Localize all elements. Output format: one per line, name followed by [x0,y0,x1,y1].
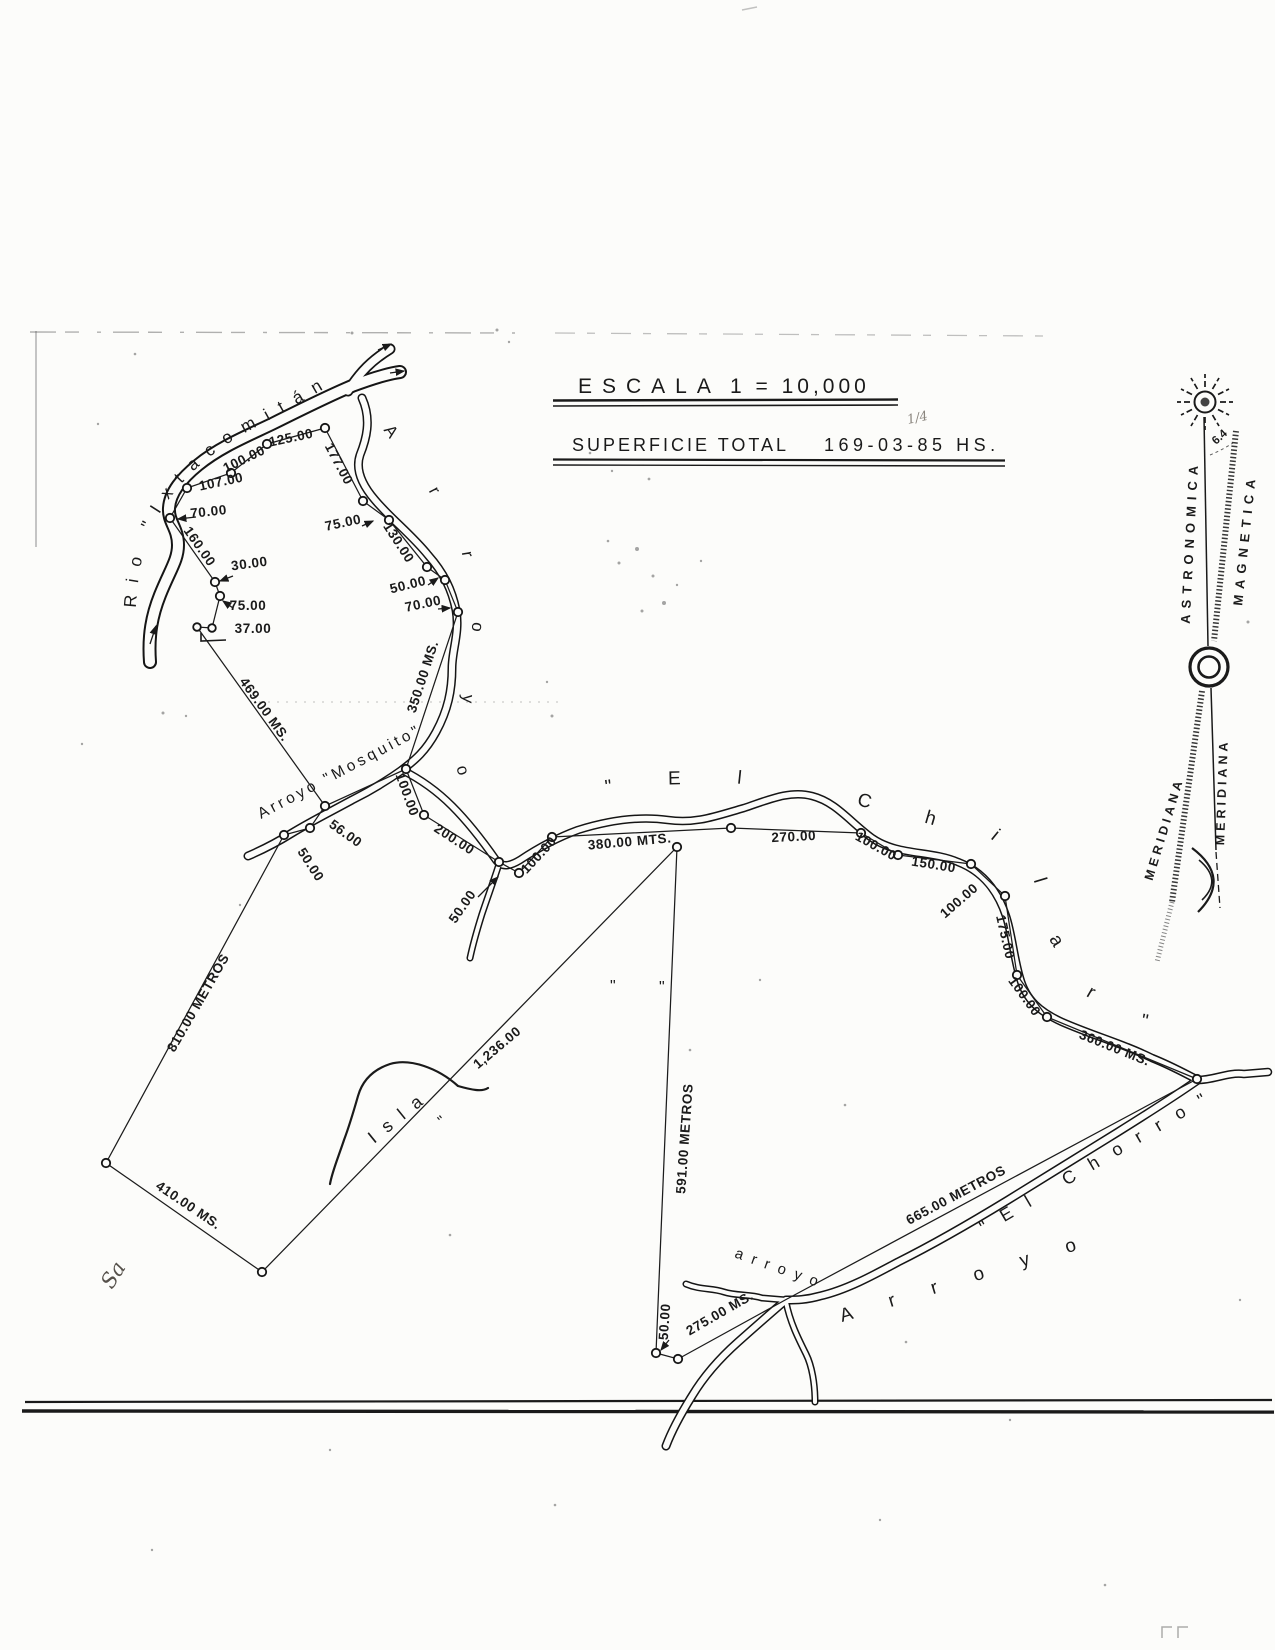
leader-arrow-75b [362,521,373,526]
dim-175: 175.00 [993,913,1018,960]
dim-50b: 50.00 [446,887,479,926]
escala-underline-1 [553,400,898,401]
ditto-mark-2: " [610,978,616,995]
dim-380: 380.00 MTS. [587,830,672,852]
sun-icon [1177,374,1233,430]
dim-270: 270.00 [771,828,817,845]
compass-ring-icon [1190,648,1228,686]
isla-label: Isla [364,1084,436,1147]
escala-underline-2 [553,405,898,406]
ditto-mark-3: " [659,979,665,996]
superficie-label: SUPERFICIE TOTAL [572,435,789,455]
leader-arrow-50a [428,578,438,585]
bottom-border-line-2 [22,1411,1274,1412]
small-arroyo-label: arroyo [732,1245,829,1294]
dim-50a: 50.00 [388,573,427,596]
survey-map-drawing: 107.00 100.00 125.00 177.00 70.00 160.00… [0,0,1275,1650]
superficie-value: 169-03-85 HS. [824,435,1000,455]
astronomic-meridian-line [1204,417,1208,646]
astronomica-label: ASTRONOMICA [1178,459,1202,624]
dim-469: 469.00 MS. [237,675,293,745]
compass-diagram: 6.4 ASTRONOMICA MAGNETICA MERIDIANA MERI… [1142,374,1259,962]
top-border-line [30,332,515,333]
magnetica-label: MAGNETICA [1230,473,1259,607]
dim-37: 37.00 [235,621,272,636]
dim-30: 30.00 [230,554,269,574]
dim-107: 107.00 [198,470,245,494]
dim-70b: 70.00 [404,592,443,614]
boundary-west [106,835,677,1353]
title-block: ESCALA 1 = 10,000 SUPERFICIE TOTAL 169-0… [553,375,1005,466]
dim-177: 177.00 [322,441,356,488]
declination-arc [1210,443,1233,455]
declination-value: 6.4 [1210,427,1230,447]
el-chorro-label: "El Chorro" [976,1081,1224,1237]
dim-75b: 75.00 [324,511,363,533]
dim-50d: 50.00 [656,1303,674,1341]
crescent-icon [1192,848,1214,912]
dim-360: 360.00 MS. [1077,1027,1152,1069]
magnetic-meridian-band [1214,431,1236,641]
meridiana-left-label: MERIDIANA [1142,776,1187,882]
isla-outline [330,1062,488,1184]
superficie-underline-1 [553,460,1005,461]
dim-56: 56.00 [326,816,365,850]
ditto-mark-1: " [435,1113,450,1129]
escala-label: ESCALA [578,375,721,398]
corner-registration-marks [1162,1627,1188,1638]
handwritten-note: Sa [96,1257,131,1293]
pencil-annotation: 1/4 [906,409,930,428]
dim-410: 410.00 MS. [153,1178,224,1232]
rio-ixtacomitan-label: Rio "Ixtacomitán [120,369,336,608]
el-chilar-stream [402,770,1268,1080]
leader-arrow-30 [220,576,233,581]
superficie-underline-2 [553,465,1005,466]
dim-591: 591.00 METROS [673,1083,696,1194]
meridiana-right-label: MERIDIANA [1213,738,1231,845]
dim-50c: 50.00 [294,845,327,884]
meridian-line-dashed [1216,852,1220,908]
dim-100d: 100.00 [853,829,900,864]
bottom-border-line-1 [25,1400,1272,1402]
dim-70a: 70.00 [189,502,227,521]
dim-75a: 75.00 [230,598,267,613]
streams [149,349,1268,1446]
el-chilar-label: "El Chilar" [604,767,1205,1043]
leader-arrow-70b [438,608,450,609]
dim-160: 160.00 [181,524,219,569]
dim-100e: 100.00 [937,880,981,921]
leader-arrow-50d [661,1340,669,1350]
dim-350: 350.00 MS. [404,639,441,715]
escala-value: 1 = 10,000 [730,375,870,398]
scanned-survey-map-page: 107.00 100.00 125.00 177.00 70.00 160.00… [0,0,1275,1650]
dim-810: 810.00 METROS [164,951,232,1054]
